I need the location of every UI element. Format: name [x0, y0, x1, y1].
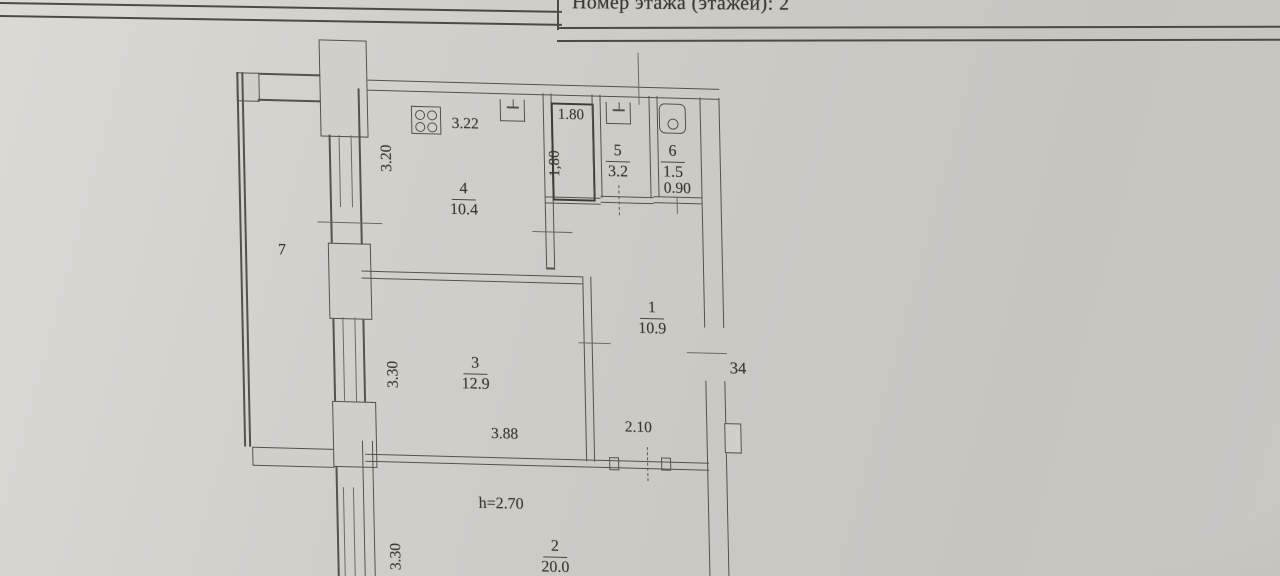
- room-label-6: 6 1.5: [658, 143, 687, 181]
- room4-area: 10.4: [450, 200, 478, 220]
- dim-toilet-door: 0.90: [656, 179, 698, 198]
- room3-window-glazing: [342, 317, 345, 401]
- dim-closet-depth: 1,80: [546, 141, 563, 185]
- wall-pillar-top-left: [319, 39, 369, 137]
- bath-sink-icon: [606, 102, 631, 125]
- room5-number: 5: [605, 143, 629, 162]
- dim-kitchen-width: 3.22: [445, 115, 485, 134]
- wall-closet-bath: [591, 95, 602, 198]
- wall-bath-south: [601, 196, 654, 204]
- room2-window-glazing-2: [353, 487, 357, 576]
- dim-room2-depth: 3.30: [387, 534, 404, 576]
- floor-number-title: Номер этажа (этажей): 2: [572, 0, 790, 16]
- balcony-end-wall: [252, 447, 334, 468]
- dimension-tick-entrance: [687, 352, 727, 354]
- wall-pier-west: [328, 243, 373, 320]
- room-label-3: 3 12.9: [457, 355, 494, 394]
- floor-plan-drawing: 3.22 3.20 1.80 1,80 0.90 34 3.88 3.30 2.…: [0, 0, 1280, 576]
- room-label-5: 5 3.2: [602, 143, 633, 181]
- wall-room3-room2: [365, 454, 709, 471]
- wall-west-outer-face: [329, 135, 341, 576]
- ceiling-height-note: h=2.70: [466, 494, 536, 514]
- door-jamb-right: [661, 457, 671, 470]
- wall-room3-hall: [582, 276, 595, 461]
- apartment-number: 34: [724, 358, 752, 379]
- room1-number: 1: [640, 300, 664, 319]
- room3-number: 3: [463, 355, 487, 374]
- dimension-tick-west-wall: [317, 221, 382, 224]
- room-label-1: 1 10.9: [633, 300, 672, 339]
- room-label-7: 7: [273, 241, 291, 259]
- toilet-icon: [659, 103, 687, 134]
- room3-window-glazing-2: [354, 317, 357, 401]
- wall-east-lower: [705, 381, 730, 576]
- room4-number: 4: [451, 181, 475, 200]
- kitchen-sink-icon: [500, 99, 525, 122]
- wall-pier-east: [724, 423, 742, 453]
- room6-number: 6: [660, 143, 684, 162]
- room-label-4: 4 10.4: [444, 181, 483, 220]
- scanned-floor-plan-page: Номер этажа (этажей): 2: [0, 0, 1280, 576]
- balcony-top-inner-edge: [258, 99, 321, 102]
- dim-room3-depth: 3.30: [384, 352, 401, 396]
- kitchen-window-glazing: [339, 135, 342, 207]
- wall-kitchen-room3: [361, 271, 582, 285]
- room6-area: 1.5: [663, 162, 683, 181]
- wall-closet-south: [545, 196, 601, 204]
- room3-area: 12.9: [461, 374, 489, 394]
- dim-closet-width: 1.80: [551, 106, 591, 124]
- dimension-tick-top-wall: [638, 53, 640, 105]
- dim-hall-width: 2.10: [616, 418, 660, 437]
- room1-area: 10.9: [638, 319, 666, 339]
- room2-area: 20.0: [541, 557, 569, 576]
- kitchen-window-glazing-2: [351, 135, 354, 207]
- wall-east-upper: [699, 97, 724, 328]
- door-jamb-left: [609, 457, 619, 470]
- room5-area: 3.2: [608, 162, 628, 181]
- dim-room3-width: 3.88: [482, 425, 526, 444]
- wall-top: [359, 79, 719, 99]
- wall-kitchen-closet-cap: [546, 267, 555, 269]
- dim-kitchen-depth: 3.20: [378, 136, 395, 180]
- room-label-2: 2 20.0: [535, 538, 576, 576]
- stove-icon: [411, 106, 442, 135]
- balcony-top-step: [236, 72, 260, 102]
- room2-number: 2: [543, 538, 567, 557]
- room2-window-glazing: [343, 487, 347, 576]
